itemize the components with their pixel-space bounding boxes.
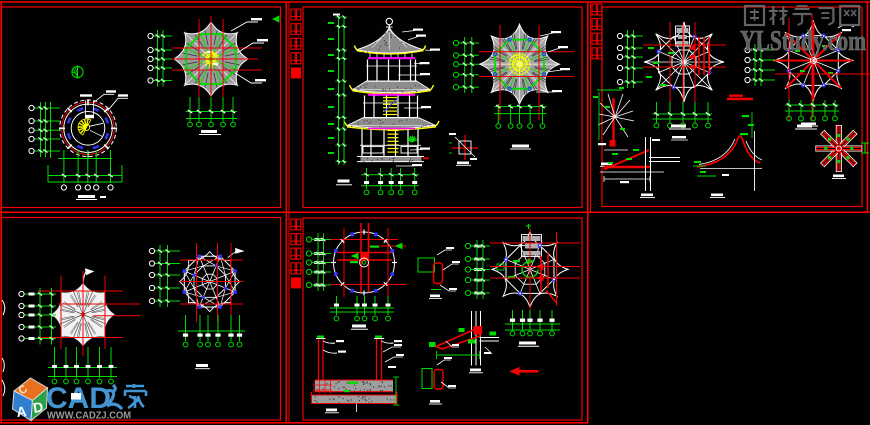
svg-text:YLStudy.com: YLStudy.com (740, 25, 866, 57)
svg-text:A: A (16, 403, 28, 420)
svg-text:WWW.CADZJ.COM: WWW.CADZJ.COM (47, 410, 131, 422)
